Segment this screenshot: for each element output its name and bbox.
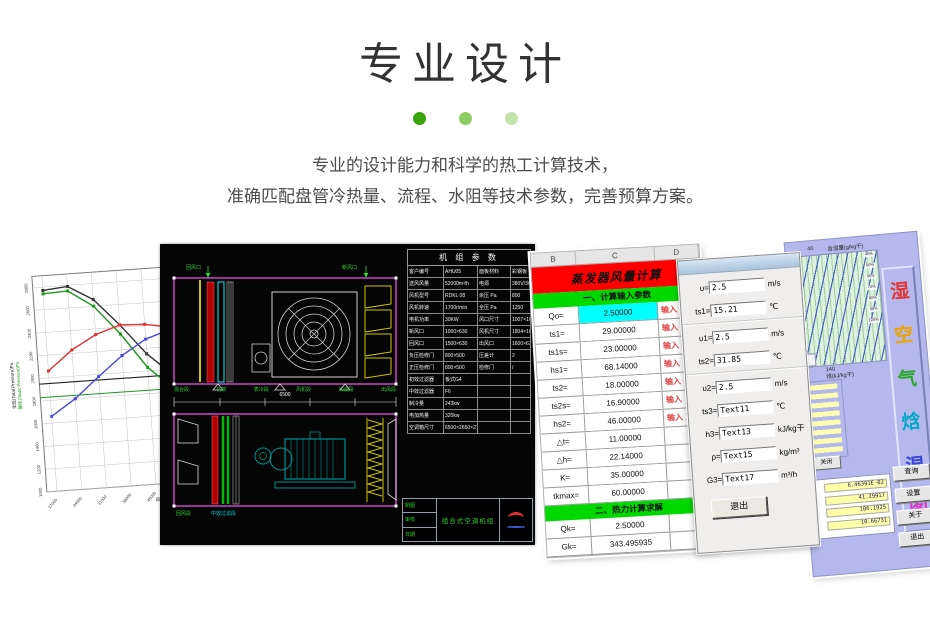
column-header-d[interactable]: D bbox=[654, 245, 699, 260]
param-value-2 bbox=[511, 374, 530, 385]
field-input[interactable] bbox=[712, 327, 769, 344]
field-unit: kJ/kg干 bbox=[778, 422, 805, 435]
param-label-1: 电加热量 bbox=[408, 410, 444, 421]
action-button[interactable]: 退出 bbox=[898, 529, 930, 547]
unit-parameter-table: 机 组 参 数 客户编号 AHU05 面板材料 彩钢板 送风风量 52000m³… bbox=[407, 249, 531, 434]
grip-handles bbox=[173, 277, 398, 386]
field-unit: m/s bbox=[774, 378, 787, 388]
param-label-1: 电机功率 bbox=[408, 314, 444, 325]
svg-text:2400: 2400 bbox=[26, 328, 32, 338]
param-label-2 bbox=[478, 422, 511, 433]
electric-heater-zigzag bbox=[367, 418, 383, 502]
param-label-2: 风机尺寸 bbox=[478, 326, 511, 337]
param-label-2 bbox=[478, 410, 511, 421]
param-label-2 bbox=[478, 398, 511, 409]
parameter-rows: 客户编号 AHU05 面板材料 彩钢板 送风风量 52000m³/h 电源 38… bbox=[407, 266, 531, 434]
parameter-row: 新风口 1000×630 风机尺寸 1804×1007 bbox=[407, 326, 531, 338]
svg-text:2800: 2800 bbox=[23, 283, 29, 293]
param-label-1: 制冷量 bbox=[408, 398, 444, 409]
cell-label[interactable]: ts1s= bbox=[536, 342, 582, 361]
column-header-b[interactable]: B bbox=[531, 251, 577, 266]
param-value-1: RDKL 08 bbox=[444, 290, 478, 301]
param-value-1: 30KW bbox=[444, 314, 478, 325]
cell-label[interactable]: Gk= bbox=[547, 537, 593, 556]
parameter-row: 空调箱尺寸 6500×2650×2750(H) bbox=[407, 422, 531, 434]
field-input[interactable] bbox=[710, 301, 767, 318]
rh-label: 40% bbox=[864, 252, 874, 257]
param-value-2 bbox=[511, 410, 530, 421]
param-value-1: 1500×630 bbox=[444, 338, 478, 349]
param-value-2: 2 bbox=[511, 350, 530, 361]
rh-label: 60% bbox=[866, 274, 876, 279]
param-label-1: 初效过滤器 bbox=[408, 374, 444, 385]
app-title-char: 气 bbox=[897, 363, 918, 392]
field-input[interactable] bbox=[714, 350, 771, 367]
field-label: ts1= bbox=[684, 306, 711, 317]
title-block-product: 组合式空调机组 bbox=[437, 499, 500, 541]
parameter-row: 正压检修门 800×500 检修门 / bbox=[407, 362, 531, 374]
app-title-char: 湿 bbox=[889, 276, 910, 305]
cell-value[interactable]: 343.495935 bbox=[592, 533, 672, 554]
param-value-2: 380V/3/50 bbox=[511, 278, 530, 289]
field-label: ρ= bbox=[694, 452, 721, 463]
cell-label[interactable]: ts1= bbox=[535, 324, 581, 343]
parameter-row: 送风风量 52000m³/h 电源 380V/3/50 bbox=[407, 278, 531, 290]
param-label-1: 新风口 bbox=[408, 326, 444, 337]
param-label-1: 风机转速 bbox=[408, 302, 444, 313]
segment-label: 均流段 bbox=[339, 386, 354, 393]
field-unit: ℃ bbox=[769, 302, 779, 312]
filter-strip bbox=[227, 282, 233, 382]
param-value-2: 1007×1007 bbox=[511, 314, 530, 325]
field-input[interactable] bbox=[720, 446, 777, 463]
action-button[interactable]: 查询 bbox=[893, 464, 930, 482]
field-label: G3= bbox=[696, 475, 723, 486]
field-label: h3= bbox=[693, 429, 720, 440]
parameter-row: 制冷量 243kw bbox=[407, 398, 531, 410]
field-input[interactable] bbox=[708, 278, 765, 295]
fan-scroll bbox=[252, 292, 357, 377]
param-value-1: 800×500 bbox=[444, 350, 478, 361]
param-label-2: 压差计 bbox=[478, 350, 511, 361]
param-value-1: 1000×630 bbox=[444, 326, 478, 337]
param-value-2: 1250 bbox=[511, 302, 530, 313]
segment-label: 表冷段 bbox=[254, 386, 269, 393]
action-button[interactable]: 关于 bbox=[896, 507, 930, 525]
field-unit: m³/h bbox=[781, 470, 798, 480]
segment-label: 回风段 bbox=[176, 510, 191, 517]
field-label: ts2= bbox=[688, 356, 715, 367]
motor-assembly bbox=[255, 432, 355, 488]
field-unit: ℃ bbox=[773, 352, 783, 362]
param-label-2 bbox=[478, 374, 511, 385]
title-block-cell: 制图 bbox=[403, 499, 436, 513]
dimension-line bbox=[174, 397, 396, 407]
segment-label: 风机段 bbox=[296, 386, 311, 393]
param-label-2: 风口尺寸 bbox=[478, 314, 511, 325]
app-title-char: 空 bbox=[893, 320, 914, 349]
dialog-fields: υ= m/s ts1= ℃ υ1= m/s ts2= ℃ bbox=[679, 267, 815, 493]
param-label-2: 电源 bbox=[478, 278, 511, 289]
cell-label[interactable]: K= bbox=[543, 468, 589, 487]
app-title-char: 焓 bbox=[900, 407, 921, 436]
cell-label[interactable]: hs1= bbox=[537, 360, 583, 379]
rh-label: 50% bbox=[865, 263, 875, 268]
field-label: υ2= bbox=[690, 383, 717, 394]
enthalpy-axis-label: 140 焓(kJ/kg干) bbox=[826, 365, 855, 380]
param-value-1: 320kw bbox=[444, 410, 478, 421]
parameter-row: 电加热量 320kw bbox=[407, 410, 531, 422]
field-unit: ℃ bbox=[776, 401, 786, 411]
rh-label: 90% bbox=[869, 306, 879, 311]
param-label-1: 回风口 bbox=[408, 338, 444, 349]
svg-text:38000: 38000 bbox=[121, 492, 133, 505]
action-buttons: 查询设置关于退出 bbox=[893, 464, 930, 548]
field-input[interactable] bbox=[715, 377, 772, 394]
svg-text:2600: 2600 bbox=[25, 305, 31, 315]
segment-label: 中效过滤段 bbox=[211, 510, 236, 517]
param-value-2 bbox=[511, 398, 530, 409]
svg-text:1200: 1200 bbox=[36, 464, 42, 474]
logo-underline-icon bbox=[507, 526, 525, 528]
svg-text:1800: 1800 bbox=[31, 396, 37, 406]
outlet-louvers bbox=[365, 286, 391, 378]
coil-red bbox=[212, 416, 218, 504]
param-value-1: F6 bbox=[444, 386, 478, 397]
param-label-1: 负压检修门 bbox=[408, 350, 444, 361]
param-label-2: 检修门 bbox=[478, 362, 511, 373]
parameter-row: 客户编号 AHU05 面板材料 彩钢板 bbox=[407, 266, 531, 278]
param-label-2: 面板材料 bbox=[478, 266, 511, 277]
field-label: υ= bbox=[683, 283, 710, 294]
parameter-row: 回风口 1500×630 出风口 1600×630 bbox=[407, 338, 531, 350]
param-value-1: 243kw bbox=[444, 398, 478, 409]
close-button[interactable]: 关闭 bbox=[811, 455, 841, 470]
title-block: 制图审核日期 组合式空调机组 bbox=[402, 498, 533, 542]
fresh-air-label: 新风口 bbox=[342, 264, 357, 271]
segment-label: 初效 bbox=[216, 386, 226, 393]
svg-text:1000: 1000 bbox=[38, 487, 44, 497]
parameter-row: 风机型号 RDKL 08 余压 Pa 800 bbox=[407, 290, 531, 302]
param-value-1: 52000m³/h bbox=[444, 278, 478, 289]
promo-section: 专业设计 专业的设计能力和科学的热工计算技术， 准确匹配盘管冷热量、流程、水阻等… bbox=[0, 0, 930, 625]
cooling-coil bbox=[218, 282, 224, 382]
cell-label[interactable]: tkmax= bbox=[544, 486, 590, 505]
design-collage: 1000120014001600180020002200240026002800… bbox=[0, 0, 930, 625]
parameter-row: 中效过滤器 F6 bbox=[407, 386, 531, 398]
logo-swirl-icon bbox=[508, 512, 524, 524]
cell-label[interactable]: Qk= bbox=[546, 519, 592, 538]
title-block-cell: 日期 bbox=[403, 528, 436, 541]
param-value-2: 1600×630 bbox=[511, 338, 530, 349]
field-input[interactable] bbox=[722, 469, 779, 486]
heating-coil bbox=[207, 282, 214, 382]
param-value-2 bbox=[511, 386, 530, 397]
svg-text:24000: 24000 bbox=[72, 495, 84, 508]
param-label-2: 余压 Pa bbox=[478, 290, 511, 301]
svg-text:17000: 17000 bbox=[47, 497, 59, 510]
action-button[interactable]: 设置 bbox=[894, 486, 930, 504]
segment-labels-bottom: 回风段中效过滤段 bbox=[176, 510, 236, 517]
humidity-tick: 40 bbox=[807, 246, 814, 255]
param-value-2: 800 bbox=[511, 290, 530, 301]
field-input[interactable] bbox=[717, 400, 774, 417]
svg-text:1600: 1600 bbox=[33, 419, 39, 429]
param-value-1: 板式G4 bbox=[444, 374, 478, 385]
cell-label[interactable]: ts2= bbox=[538, 378, 584, 397]
field-label: ts3= bbox=[691, 406, 718, 417]
param-label-1: 空调箱尺寸 bbox=[408, 422, 444, 433]
param-label-2 bbox=[478, 386, 511, 397]
field-input[interactable] bbox=[719, 423, 776, 440]
svg-text:31000: 31000 bbox=[96, 494, 108, 507]
access-doors bbox=[178, 419, 198, 484]
param-label-2: 全压 Pa bbox=[478, 302, 511, 313]
param-label-1: 送风风量 bbox=[408, 278, 444, 289]
segment-label: 混合段 bbox=[174, 386, 189, 393]
field-unit: kg/m³ bbox=[779, 447, 800, 457]
param-label-1: 风机型号 bbox=[408, 290, 444, 301]
param-value-2: 彩钢板 bbox=[511, 266, 530, 277]
parameter-row: 风机转速 1700r/min 全压 Pa 1250 bbox=[407, 302, 531, 314]
cell-label[interactable]: ts2s= bbox=[539, 396, 585, 415]
field-label: υ1= bbox=[686, 333, 713, 344]
cell-label[interactable]: △h= bbox=[542, 450, 588, 469]
cell-label[interactable]: Qo= bbox=[534, 306, 580, 325]
param-value-2 bbox=[511, 422, 530, 433]
exit-button[interactable]: 退出 bbox=[711, 496, 768, 519]
cell-label[interactable]: △t= bbox=[541, 432, 587, 451]
rh-label: 80% bbox=[868, 295, 878, 300]
param-value-1: 800×500 bbox=[444, 362, 478, 373]
field-unit: m/s bbox=[771, 328, 784, 338]
result-value-field: 10.66731 bbox=[827, 516, 891, 530]
parameter-row: 电机功率 30KW 风口尺寸 1007×1007 bbox=[407, 314, 531, 326]
param-value-1: AHU05 bbox=[444, 266, 478, 277]
param-value-1: 1700r/min bbox=[444, 302, 478, 313]
param-label-2: 出风口 bbox=[478, 338, 511, 349]
param-label-1: 中效过滤器 bbox=[408, 386, 444, 397]
svg-text:1400: 1400 bbox=[34, 441, 40, 451]
result-values-box: 6.46391E-0241.29917106.192510.66731 bbox=[812, 473, 895, 540]
field-unit: m/s bbox=[767, 278, 780, 288]
cell-label[interactable]: hs2= bbox=[540, 414, 586, 433]
segment-labels-top: 混合段初效表冷段风机段均流段出风段 bbox=[174, 386, 396, 393]
parameter-row: 初效过滤器 板式G4 bbox=[407, 374, 531, 386]
title-block-cell: 审核 bbox=[403, 513, 436, 527]
return-air-label: 回风口 bbox=[186, 264, 201, 271]
segment-label: 出风段 bbox=[381, 386, 396, 393]
parameter-table-title: 机 组 参 数 bbox=[407, 249, 531, 266]
param-value-2: / bbox=[511, 362, 530, 373]
param-label-1: 客户编号 bbox=[408, 266, 444, 277]
calc-dialog-panel: υ= m/s ts1= ℃ υ1= m/s ts2= ℃ bbox=[677, 252, 820, 554]
rh-label: 70% bbox=[867, 285, 877, 290]
param-value-1: 6500×2650×2750(H) bbox=[444, 422, 478, 433]
company-logo bbox=[500, 499, 532, 541]
outlet-panel bbox=[388, 419, 396, 500]
param-label-1: 正压检修门 bbox=[408, 362, 444, 373]
svg-text:2200: 2200 bbox=[28, 351, 34, 361]
filter-strip-2 bbox=[233, 416, 239, 504]
title-block-cells: 制图审核日期 bbox=[403, 499, 437, 541]
cad-drawing-panel: 6500 bbox=[160, 244, 535, 545]
param-value-2: 1804×1007 bbox=[511, 326, 530, 337]
svg-text:2000: 2000 bbox=[30, 373, 36, 383]
parameter-row: 负压检修门 800×500 压差计 2 bbox=[407, 350, 531, 362]
ahu-cad-drawing: 6500 bbox=[160, 244, 410, 545]
